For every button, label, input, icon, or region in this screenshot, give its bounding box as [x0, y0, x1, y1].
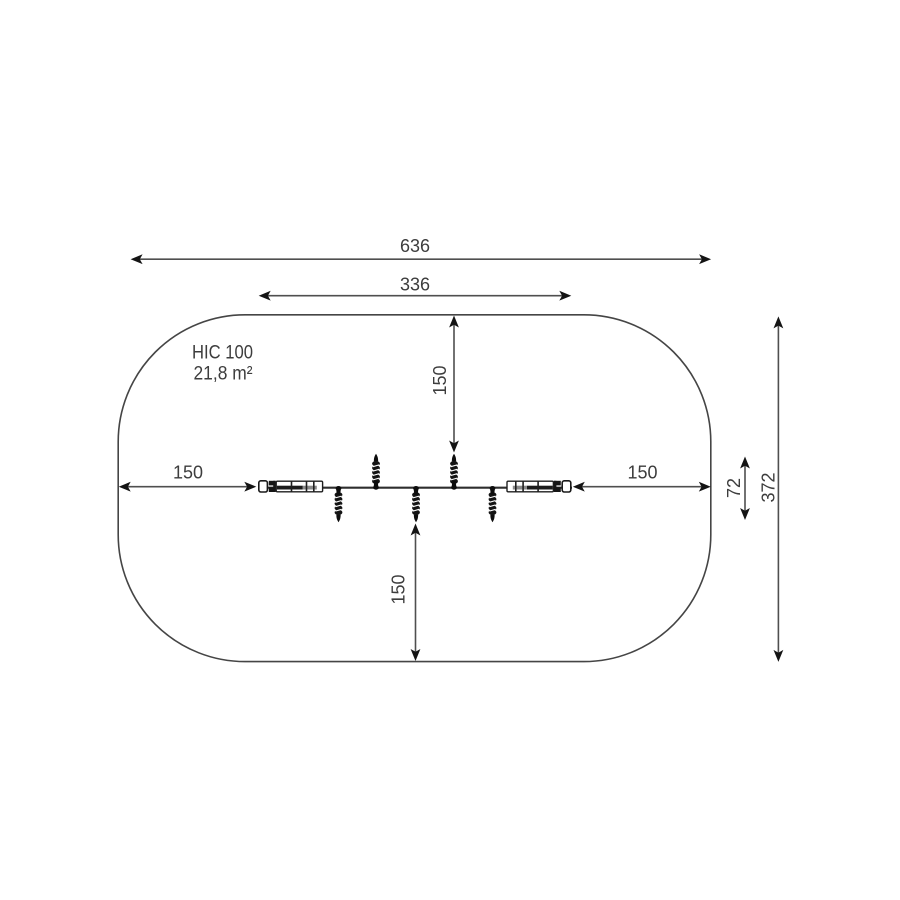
svg-text:150: 150: [430, 365, 450, 395]
svg-text:150: 150: [389, 574, 409, 604]
svg-text:336: 336: [400, 275, 430, 295]
svg-text:HIC 100: HIC 100: [192, 342, 253, 364]
svg-text:21,8 m²: 21,8 m²: [194, 363, 253, 385]
svg-text:150: 150: [627, 463, 657, 483]
svg-text:636: 636: [400, 236, 430, 256]
svg-text:150: 150: [173, 463, 203, 483]
svg-text:72: 72: [724, 478, 744, 498]
svg-text:372: 372: [759, 472, 779, 502]
